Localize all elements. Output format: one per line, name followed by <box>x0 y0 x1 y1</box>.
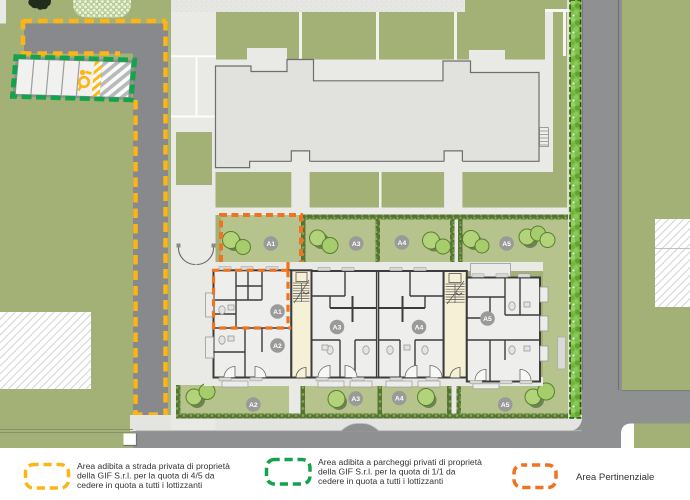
svg-text:A5: A5 <box>501 402 510 409</box>
svg-text:cedere in quota a tutti i lott: cedere in quota a tutti i lottizzanti <box>77 480 202 490</box>
svg-text:A3: A3 <box>333 325 342 332</box>
svg-text:A3: A3 <box>352 241 361 248</box>
svg-text:A3: A3 <box>351 396 360 403</box>
svg-text:A1: A1 <box>266 241 275 248</box>
svg-text:A5: A5 <box>502 241 511 248</box>
svg-text:A1: A1 <box>273 309 282 316</box>
svg-text:A4: A4 <box>415 325 424 332</box>
svg-text:Area Pertinenziale: Area Pertinenziale <box>576 472 654 483</box>
svg-text:A2: A2 <box>249 402 258 409</box>
svg-text:A4: A4 <box>398 240 407 247</box>
svg-text:A2: A2 <box>273 343 282 350</box>
svg-text:cedere in quota a tutti i lott: cedere in quota a tutti i lottizzanti <box>318 476 443 486</box>
svg-text:A5: A5 <box>483 316 492 323</box>
svg-text:A4: A4 <box>395 396 404 403</box>
